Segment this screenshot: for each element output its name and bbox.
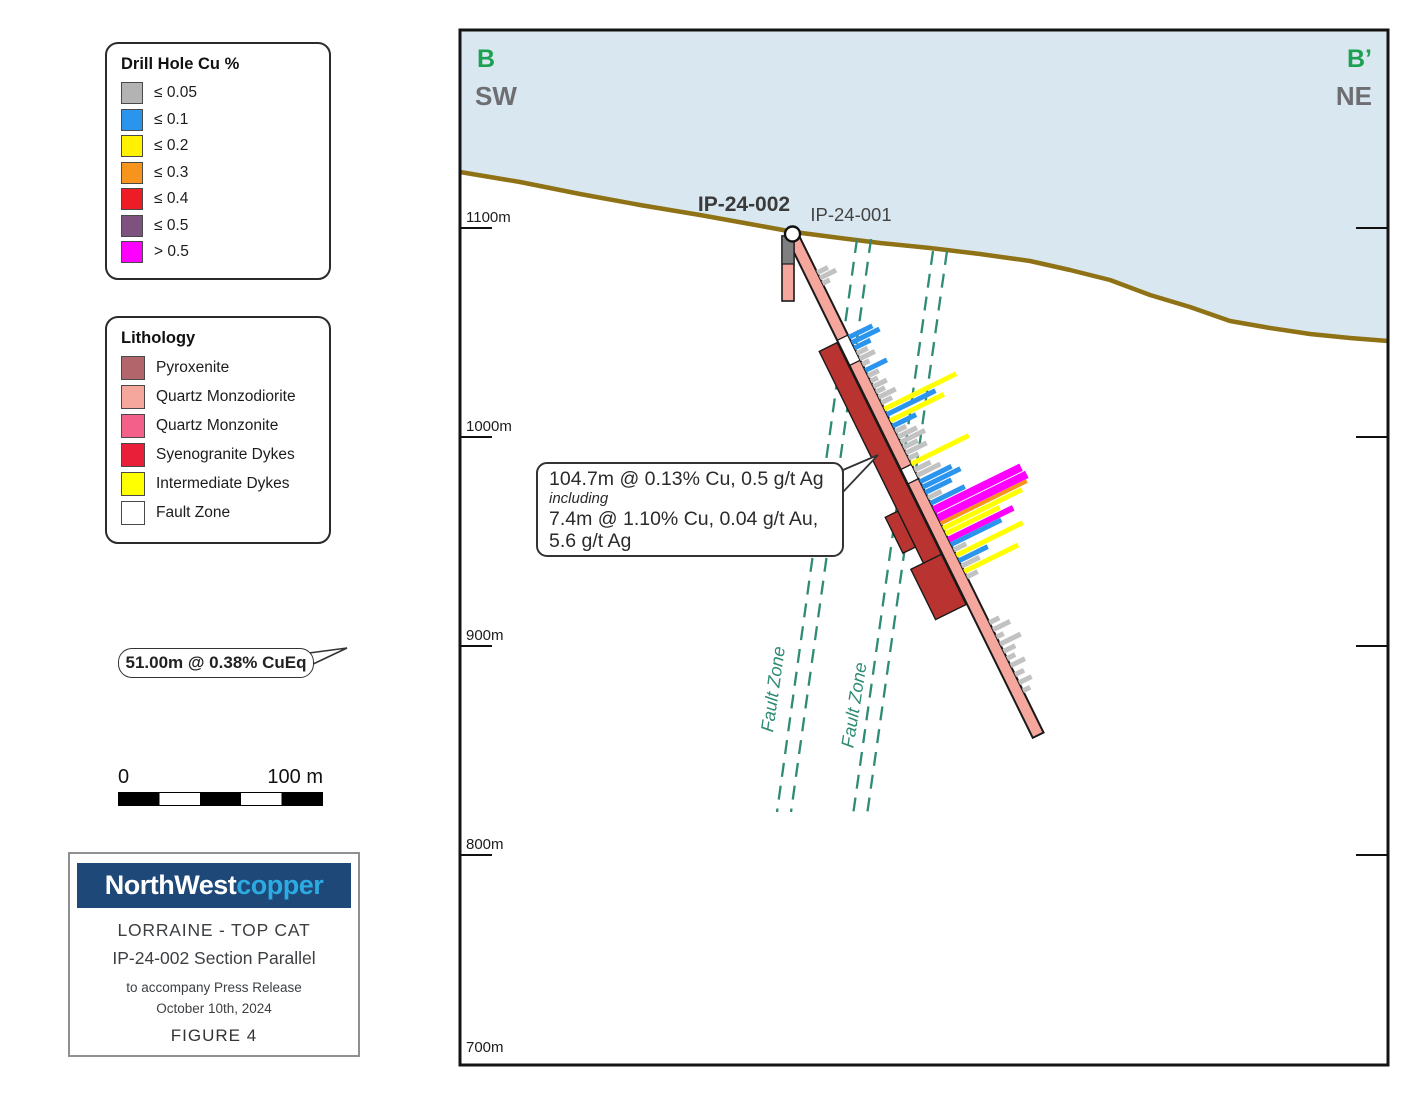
elevation-label: 900m	[466, 627, 504, 644]
drillhole-collar	[785, 227, 800, 242]
annotation-interval: 104.7m @ 0.13% Cu, 0.5 g/t Ag	[549, 468, 824, 490]
annotation-including: including	[549, 490, 609, 507]
elevation-label: 700m	[466, 1039, 504, 1056]
section-line-label-b: B	[477, 45, 495, 73]
callout-leader-icon	[308, 641, 356, 675]
interval-callout-text: 51.00m @ 0.38% CuEq	[126, 653, 307, 673]
elevation-label: 800m	[466, 836, 504, 853]
drillhole-label-ip-24-001: IP-24-001	[810, 204, 891, 225]
cross-section-panel: 1100m1000m900m800m700mFault ZoneFault Zo…	[0, 0, 1424, 1098]
section-line-label-b-prime: B’	[1347, 45, 1372, 73]
drillhole-label-ip-24-002: IP-24-002	[698, 193, 790, 216]
section-direction-ne: NE	[1336, 81, 1372, 111]
annotation-subinterval-2: 5.6 g/t Ag	[549, 530, 631, 552]
annotation-subinterval: 7.4m @ 1.10% Cu, 0.04 g/t Au,	[549, 508, 818, 530]
interval-callout-example: 51.00m @ 0.38% CuEq	[118, 648, 314, 678]
section-direction-sw: SW	[475, 81, 517, 111]
elevation-label: 1000m	[466, 418, 512, 435]
elevation-label: 1100m	[466, 209, 511, 226]
